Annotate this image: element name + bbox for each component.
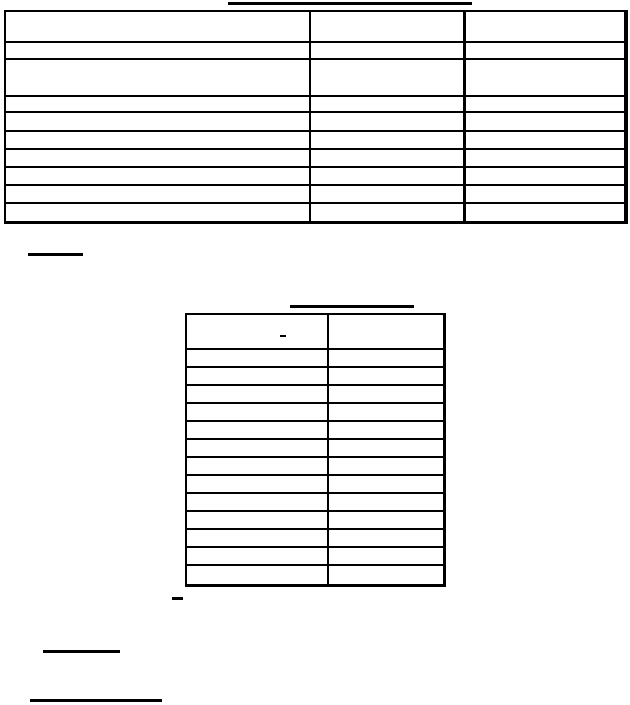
table-cell — [329, 548, 443, 566]
table-cell — [329, 315, 443, 350]
table-cell — [187, 440, 329, 458]
table-cell — [187, 422, 329, 440]
table-cell — [329, 440, 443, 458]
table-cell — [187, 458, 329, 476]
dash-mark-below-table2 — [172, 597, 183, 600]
footer-heading-1-underline — [43, 650, 120, 653]
table-cell — [6, 60, 311, 97]
table-cell — [311, 97, 466, 113]
note-heading-underline — [28, 253, 83, 256]
table-cell — [466, 150, 624, 168]
footer-heading-2-underline — [30, 699, 162, 702]
table-cell — [329, 530, 443, 548]
table-cell — [311, 204, 466, 221]
table-cell — [6, 97, 311, 113]
table-cell — [329, 368, 443, 386]
table-cell — [329, 494, 443, 512]
table-cell — [187, 566, 329, 584]
table-cell — [6, 132, 311, 150]
table-cell — [6, 12, 311, 43]
table-cell — [187, 386, 329, 404]
table-cell — [187, 350, 329, 368]
table-cell — [187, 404, 329, 422]
table-cell — [311, 113, 466, 132]
table-cell — [311, 60, 466, 97]
table-cell — [6, 150, 311, 168]
table-cell — [329, 512, 443, 530]
table-cell — [466, 43, 624, 60]
table-2 — [185, 313, 446, 587]
table-2-title-underline — [290, 305, 414, 308]
table-cell — [187, 548, 329, 566]
table-cell — [311, 168, 466, 186]
table-cell — [329, 350, 443, 368]
table-cell — [329, 404, 443, 422]
table-cell — [329, 386, 443, 404]
table-cell — [329, 476, 443, 494]
table-cell — [187, 530, 329, 548]
dash-mark-table2-header — [280, 335, 286, 337]
table-cell — [311, 150, 466, 168]
table-cell — [6, 204, 311, 221]
table-cell — [466, 186, 624, 204]
table-1 — [4, 10, 628, 224]
table-cell — [466, 97, 624, 113]
table-cell — [466, 168, 624, 186]
table-cell — [187, 368, 329, 386]
table-cell — [6, 168, 311, 186]
table-cell — [311, 43, 466, 60]
table-cell — [329, 566, 443, 584]
table-cell — [187, 315, 329, 350]
table-cell — [466, 204, 624, 221]
table-cell — [311, 186, 466, 204]
document-page — [0, 0, 630, 705]
table-cell — [187, 494, 329, 512]
table-cell — [311, 12, 466, 43]
table-cell — [187, 476, 329, 494]
table-cell — [329, 458, 443, 476]
table-cell — [6, 113, 311, 132]
table-cell — [466, 113, 624, 132]
table-cell — [6, 43, 311, 60]
table-cell — [466, 132, 624, 150]
table-cell — [311, 132, 466, 150]
table-1-title-underline — [228, 2, 472, 5]
table-cell — [466, 12, 624, 43]
table-cell — [329, 422, 443, 440]
table-cell — [6, 186, 311, 204]
table-cell — [187, 512, 329, 530]
table-cell — [466, 60, 624, 97]
